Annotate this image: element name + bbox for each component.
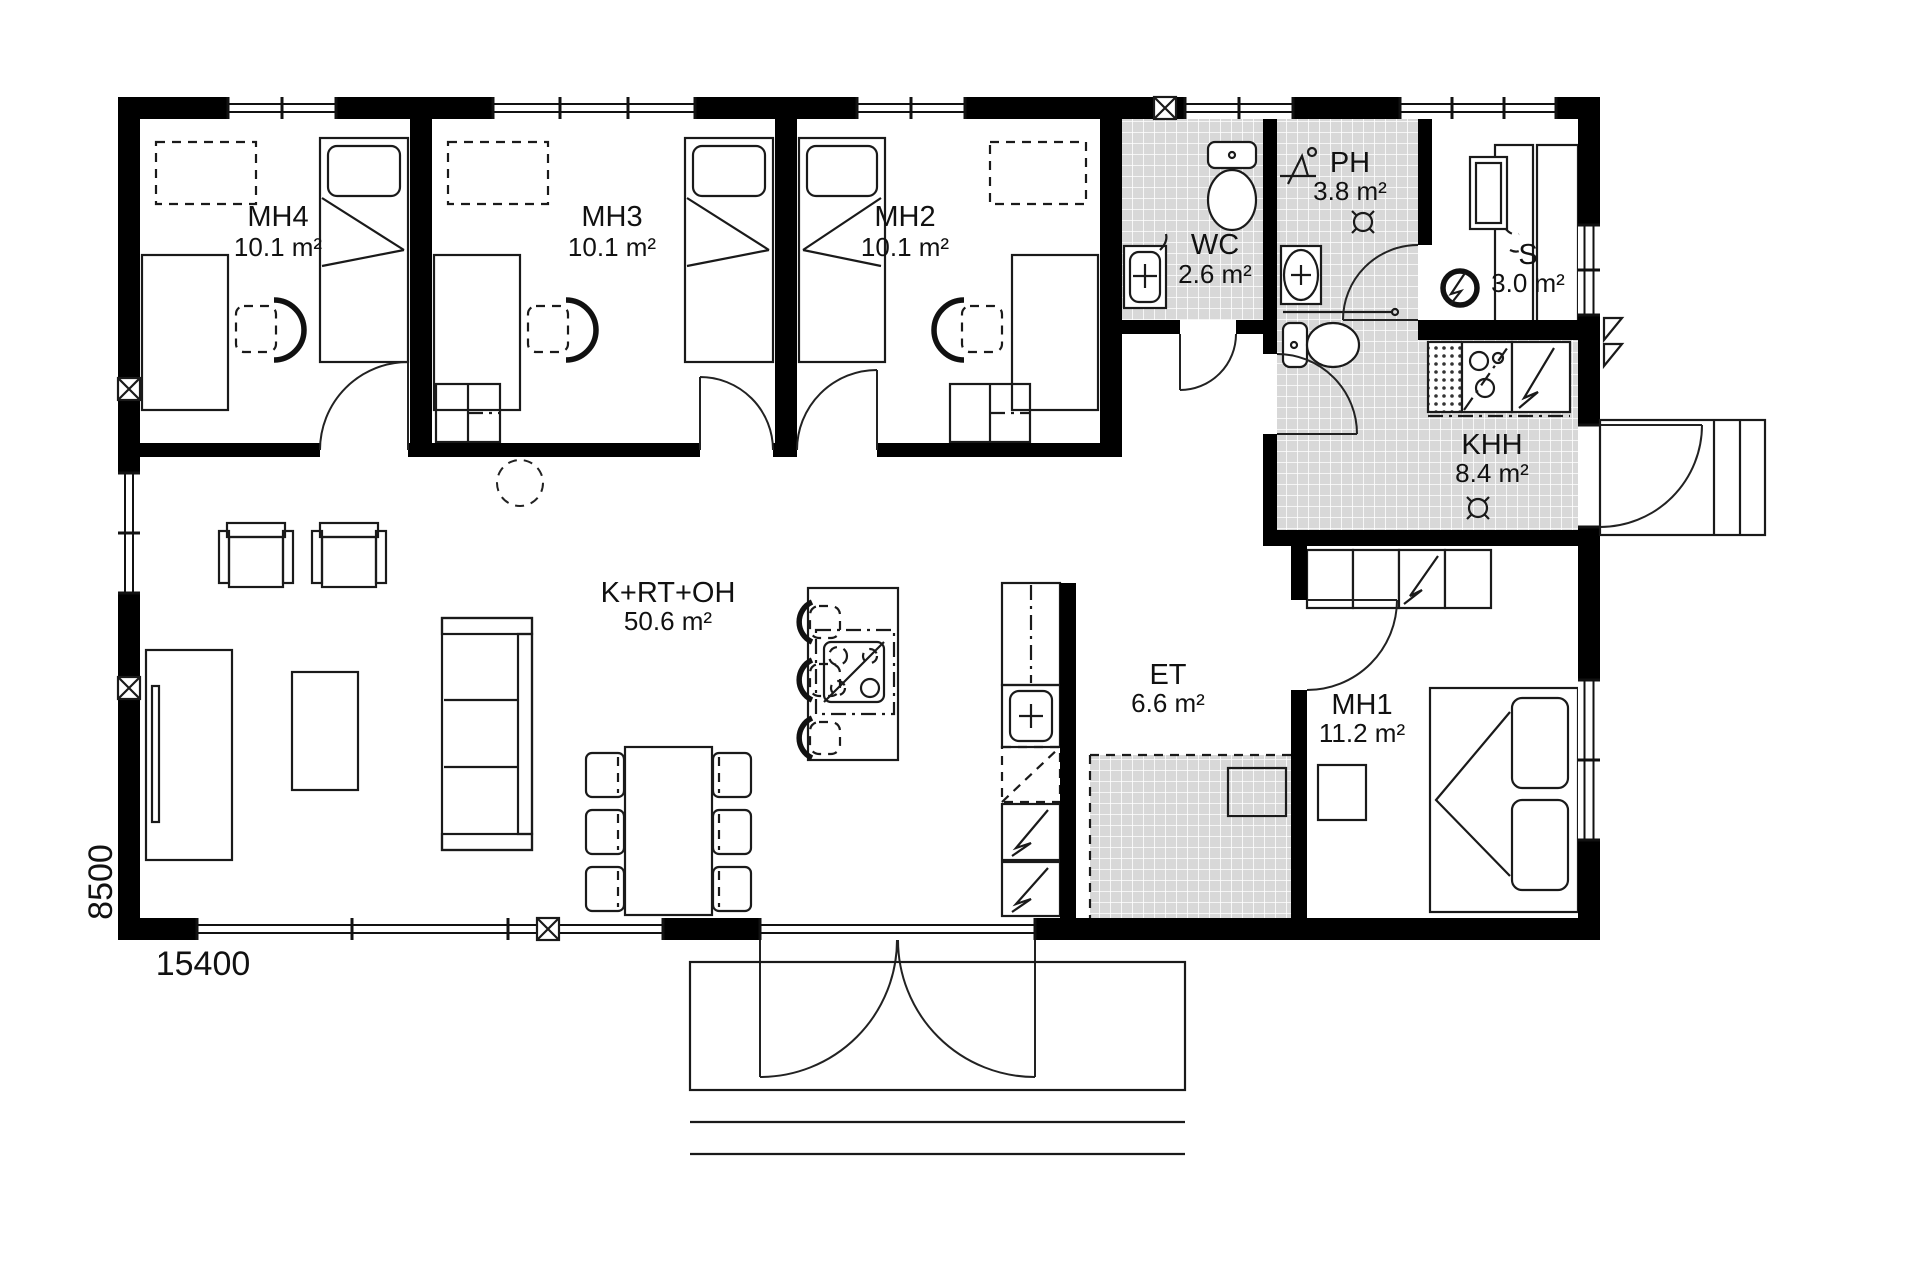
- desk-icon: [142, 255, 228, 410]
- wardrobe-icon: [448, 142, 548, 204]
- sauna-window-guard: [1470, 157, 1507, 229]
- room-label-s: S: [1518, 239, 1537, 271]
- dining-chair-icon: [586, 753, 751, 911]
- cooktop-icon: [824, 642, 884, 702]
- room-label-mh3: MH3: [581, 201, 642, 233]
- bedroom-mh2-furniture: [799, 138, 1098, 442]
- window: [493, 97, 695, 119]
- dishwasher-icon: [1002, 747, 1060, 802]
- room-area-s: 3.0 m²: [1491, 268, 1565, 298]
- wall-et-mh1: [1291, 690, 1307, 918]
- sofa-icon: [442, 618, 532, 850]
- chair-icon: [236, 306, 276, 352]
- dimension-left: 8500: [82, 844, 120, 920]
- chair-icon: [528, 306, 568, 352]
- room-label-krtoh: K+RT+OH: [601, 577, 736, 609]
- column-marker-icon: [118, 378, 140, 400]
- coffee-table-icon: [292, 672, 358, 790]
- wall-mh4-mh3: [410, 119, 432, 457]
- room-label-khh: KHH: [1461, 429, 1522, 461]
- window: [857, 97, 965, 119]
- wall-bedroom-band: [877, 443, 1122, 457]
- door-swing: [1600, 425, 1702, 527]
- wall-wc-hall: [1236, 320, 1263, 334]
- dining-table-icon: [625, 747, 712, 915]
- door-swing-mh4: [320, 362, 408, 450]
- bed-icon: [320, 138, 408, 362]
- wall-wc-ph: [1263, 119, 1277, 354]
- room-area-mh2: 10.1 m²: [861, 232, 949, 262]
- kitchen-wall-units: [1002, 583, 1060, 916]
- room-area-khh: 8.4 m²: [1455, 458, 1529, 488]
- chair-back-icon: [274, 300, 304, 360]
- wall-mh2-wc: [1100, 119, 1122, 457]
- utility-sink-icon: [1462, 342, 1512, 412]
- freezer-icon: [1002, 862, 1060, 916]
- chair-back-icon: [566, 300, 596, 360]
- ceiling-fixture-icon: [497, 460, 543, 506]
- wall-et-mh1: [1291, 546, 1307, 600]
- room-area-mh4: 10.1 m²: [234, 232, 322, 262]
- door-swing-mh3: [700, 377, 773, 450]
- washing-machine-icon: [1428, 342, 1462, 412]
- entry-mat-floor: [1090, 755, 1291, 918]
- khh-exterior-door: [1578, 425, 1702, 527]
- wall-mh3-mh2: [775, 119, 797, 457]
- desk-icon: [434, 255, 520, 410]
- kitchen-sink-icon: [1002, 685, 1060, 747]
- wardrobe-icon: [156, 142, 256, 204]
- floor-plan-page: MH4 10.1 m² MH3 10.1 m² MH2 10.1 m² WC 2…: [0, 0, 1920, 1280]
- column-marker-icon: [118, 677, 140, 699]
- wardrobe-icon: [990, 142, 1086, 204]
- bedroom-mh3-furniture: [434, 138, 773, 442]
- room-area-et: 6.6 m²: [1131, 688, 1205, 718]
- fridge-icon: [1512, 342, 1570, 412]
- bedroom-mh4-furniture: [142, 138, 408, 410]
- room-area-mh1: 11.2 m²: [1319, 718, 1406, 748]
- wall-wc-hall: [1122, 320, 1180, 334]
- living-room-furniture: [146, 460, 1060, 916]
- porch-steps: [1714, 420, 1740, 535]
- door-swing-mh1: [1307, 600, 1397, 690]
- window: [1578, 225, 1600, 315]
- room-label-mh4: MH4: [247, 201, 308, 233]
- porch-deck: [690, 962, 1185, 1090]
- bed-icon: [685, 138, 773, 362]
- desk-icon: [1012, 255, 1098, 410]
- room-label-ph: PH: [1330, 147, 1370, 179]
- door-swing-mh2: [797, 370, 877, 450]
- chair-back-icon: [934, 300, 964, 360]
- sink-icon: [1281, 246, 1321, 304]
- kitchen-island: [799, 588, 898, 760]
- room-area-wc: 2.6 m²: [1178, 259, 1252, 289]
- fridge-icon: [1002, 804, 1060, 860]
- dimension-bottom: 15400: [156, 945, 251, 983]
- dining-table-set: [586, 747, 751, 915]
- room-label-et: ET: [1149, 659, 1186, 691]
- wall-bedroom-band: [408, 443, 700, 457]
- sauna-stove-icon: [1443, 271, 1477, 305]
- room-label-mh1: MH1: [1331, 689, 1392, 721]
- window: [228, 97, 336, 119]
- dresser-icon: [436, 384, 500, 442]
- vent-marker: [1604, 318, 1622, 366]
- floor-plan-drawing: MH4 10.1 m² MH3 10.1 m² MH2 10.1 m² WC 2…: [0, 0, 1920, 1280]
- sink-icon: [1124, 234, 1166, 308]
- wall-ph-sauna: [1418, 119, 1432, 245]
- window: [1185, 97, 1293, 119]
- room-label-mh2: MH2: [874, 201, 935, 233]
- door-swing: [898, 940, 1035, 1077]
- armchair-icon: [312, 523, 386, 587]
- wall-kitchen-et: [1060, 583, 1076, 918]
- dimension-labels: 15400 8500: [82, 844, 250, 983]
- wall-khh-mh1: [1277, 530, 1600, 546]
- wall-hall-khh: [1263, 434, 1277, 546]
- armchair-icon: [219, 523, 293, 587]
- nightstand-icon: [1318, 765, 1366, 820]
- chair-icon: [962, 306, 1002, 352]
- column-marker-icon: [537, 918, 559, 940]
- exterior-doors: [690, 318, 1765, 1154]
- double-bed-icon: [1430, 688, 1578, 912]
- room-area-krtoh: 50.6 m²: [624, 606, 712, 636]
- bar-stool-icon: [799, 602, 840, 758]
- window: [1578, 680, 1600, 840]
- wall-bedroom-band: [773, 443, 797, 457]
- room-area-mh3: 10.1 m²: [568, 232, 656, 262]
- window: [1400, 97, 1556, 119]
- column-marker-icon: [1154, 97, 1176, 119]
- bottom-porch: [690, 962, 1185, 1154]
- tv-bench-icon: [146, 650, 232, 860]
- wall-bedroom-band: [140, 443, 320, 457]
- toilet-icon: [1283, 323, 1359, 367]
- porch-steps: [690, 1122, 1185, 1154]
- door-swing-wc: [1180, 334, 1236, 390]
- room-label-wc: WC: [1191, 229, 1239, 261]
- room-area-ph: 3.8 m²: [1313, 176, 1387, 206]
- terrace-double-door: [760, 918, 1035, 1077]
- window: [118, 473, 140, 593]
- wall-sauna-khh: [1418, 320, 1600, 340]
- window: [197, 918, 663, 940]
- door-swing: [760, 940, 897, 1077]
- side-porch: [1600, 420, 1765, 535]
- toilet-icon: [1208, 142, 1256, 230]
- dresser-icon: [950, 384, 1030, 442]
